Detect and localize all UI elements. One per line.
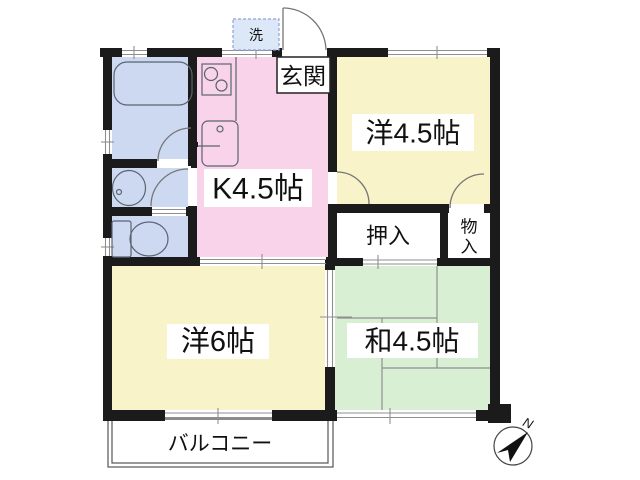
western-6-label: 洋6帖 — [181, 325, 255, 358]
closet-label: 押入 — [366, 224, 410, 249]
wall-segment — [147, 48, 222, 57]
entrance-area: 玄関 — [277, 57, 330, 93]
washer-label: 洗 — [249, 27, 263, 43]
wall-segment — [272, 410, 337, 421]
bathroom-floor — [112, 57, 188, 159]
wall-segment — [484, 204, 500, 213]
wall-segment — [325, 260, 335, 270]
wall-segment — [490, 48, 500, 404]
wall-segment — [186, 207, 197, 216]
wall-segment — [103, 410, 165, 421]
wall-segment — [437, 258, 500, 266]
wall-segment — [103, 154, 112, 238]
wall-segment — [112, 159, 157, 168]
kitchen-label: K4.5帖 — [212, 173, 304, 206]
wall-segment — [325, 367, 335, 410]
floor-plan-page: 洗 玄関 K4.5帖 洋4.5帖 洋6帖 和4.5帖 押入 物 入 バルコニー … — [0, 0, 640, 480]
storage-label-char1: 物 — [461, 218, 478, 237]
pipe-tick — [189, 142, 198, 147]
wall-segment — [328, 204, 337, 266]
wall-segment — [112, 207, 152, 216]
wall-segment — [103, 257, 200, 266]
wall-segment — [191, 159, 197, 168]
wall-segment — [440, 213, 448, 258]
wall-segment — [337, 204, 449, 213]
entrance-label: 玄関 — [280, 63, 326, 89]
washer-area: 洗 — [233, 19, 279, 50]
floor-plan-drawing: 洗 玄関 K4.5帖 洋4.5帖 洋6帖 和4.5帖 押入 物 入 バルコニー … — [0, 0, 640, 480]
japanese-4-5-label: 和4.5帖 — [365, 326, 460, 357]
storage-label-char2: 入 — [461, 238, 478, 257]
wall-segment — [103, 48, 112, 130]
balcony-label: バルコニー — [168, 433, 273, 456]
entrance-door-arc — [283, 8, 326, 50]
western-4-5-label: 洋4.5帖 — [366, 118, 461, 149]
wall-segment — [103, 256, 112, 421]
wall-segment — [476, 410, 511, 421]
wall-segment — [337, 258, 363, 266]
washroom-floor — [112, 168, 188, 207]
